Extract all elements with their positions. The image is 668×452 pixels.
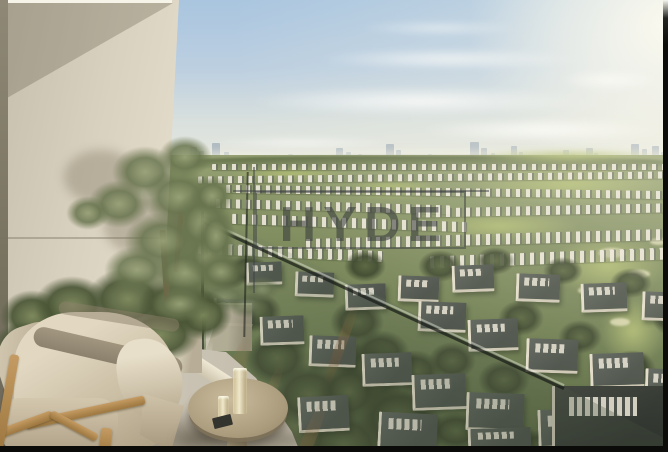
image-border-right [663,0,668,452]
watermark-text: HYDE [252,201,469,250]
candle-holder [233,368,247,414]
image-border-bottom [0,446,668,452]
tree-foliage [66,196,110,230]
tree-foliage [158,136,212,178]
tree-foliage [196,252,246,292]
balcony-view-photo: HYDE [0,0,668,452]
